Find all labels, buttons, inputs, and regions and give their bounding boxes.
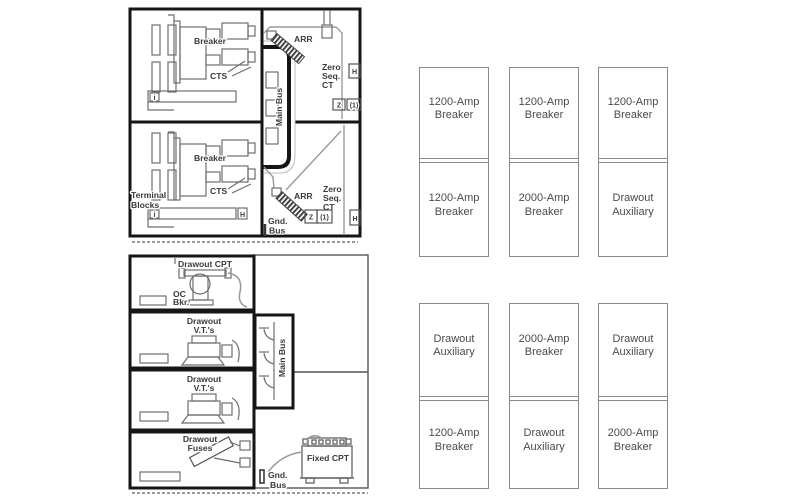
oc-bkr-label: Bkr. (173, 297, 189, 307)
z-note-badge: (1) (350, 103, 359, 110)
fixed-cpt-label: Fixed CPT (307, 453, 350, 463)
cabinet-cell-label: 1200-Amp Breaker (420, 162, 488, 256)
vt-assembly-icon (140, 336, 239, 365)
cabinet: 2000-Amp Breaker Drawout Auxiliary (509, 303, 579, 489)
terminal-blocks-label: Terminal (131, 190, 166, 200)
cabinet-cell-label: 2000-Amp Breaker (510, 304, 578, 397)
drawout-vts-label: V.T.'s (194, 325, 215, 335)
z-badge: Z (309, 215, 314, 222)
cabinet-cell-label: 1200-Amp Breaker (420, 400, 488, 488)
h-badge: H (352, 216, 357, 223)
switchgear-section-view: i Breaker CTS i Breaker CTS H Terminal B… (128, 7, 368, 250)
cabinet-cell-label: Drawout Auxiliary (599, 304, 667, 397)
drawout-cpt-label: Drawout CPT (178, 259, 233, 269)
gnd-bus-label: Bus (270, 480, 286, 490)
vt-assembly-icon (140, 394, 239, 423)
cabinet-cell-label: Drawout Auxiliary (510, 400, 578, 488)
zero-seq-label: CT (322, 80, 334, 90)
z-badge: Z (337, 103, 342, 110)
breaker-assembly-icon (148, 15, 255, 110)
cable-run (264, 167, 274, 188)
cabinet-cell-label: 1200-Amp Breaker (510, 68, 578, 159)
arr-label: ARR (294, 34, 313, 44)
cabinet: Drawout Auxiliary 2000-Amp Breaker (598, 303, 668, 489)
main-bus-label: Main Bus (274, 88, 284, 126)
cabinet: 1200-Amp Breaker 1200-Amp Breaker (419, 67, 489, 257)
i-badge: i (154, 95, 156, 102)
page: i Breaker CTS i Breaker CTS H Terminal B… (0, 0, 800, 500)
i-badge: i (154, 212, 156, 219)
cabinet-cell-label: Drawout Auxiliary (599, 162, 667, 256)
breaker-assembly-icon (148, 132, 255, 227)
breaker-label: Breaker (194, 153, 227, 163)
cabinet-cell-label: 2000-Amp Breaker (599, 400, 667, 488)
cts-label: CTS (210, 71, 227, 81)
main-bus-label: Main Bus (277, 339, 287, 377)
cabinet-cell-label: 1200-Amp Breaker (420, 68, 488, 159)
h-badge: H (240, 212, 245, 219)
breaker-label: Breaker (194, 36, 227, 46)
gnd-bus-label: Gnd. (268, 216, 288, 226)
terminal-blocks-label: Blocks (131, 200, 159, 210)
gnd-bus-label: Gnd. (268, 470, 288, 480)
gnd-bus-icon (260, 470, 264, 483)
terminal-slots-icon (152, 25, 176, 92)
arr-label: ARR (294, 191, 313, 201)
drawout-fuses-label: Fuses (188, 443, 213, 453)
auxiliary-section-view: Main Bus Drawout CPT OC Bkr. Drawout V.T… (128, 250, 372, 500)
drawout-vts-label: V.T.'s (194, 383, 215, 393)
gnd-bus-label: Bus (269, 226, 285, 236)
cabinet: 1200-Amp Breaker Drawout Auxiliary (598, 67, 668, 257)
cabinet: 1200-Amp Breaker 2000-Amp Breaker (509, 67, 579, 257)
cabinet-cell-label: 2000-Amp Breaker (510, 162, 578, 256)
z-note-badge: (1) (320, 215, 329, 222)
cabinet-cell-label: 1200-Amp Breaker (599, 68, 667, 159)
cts-label: CTS (210, 186, 227, 196)
cabinet: Drawout Auxiliary 1200-Amp Breaker (419, 303, 489, 489)
h-badge: H (352, 69, 357, 76)
cabinet-cell-label: Drawout Auxiliary (420, 304, 488, 397)
